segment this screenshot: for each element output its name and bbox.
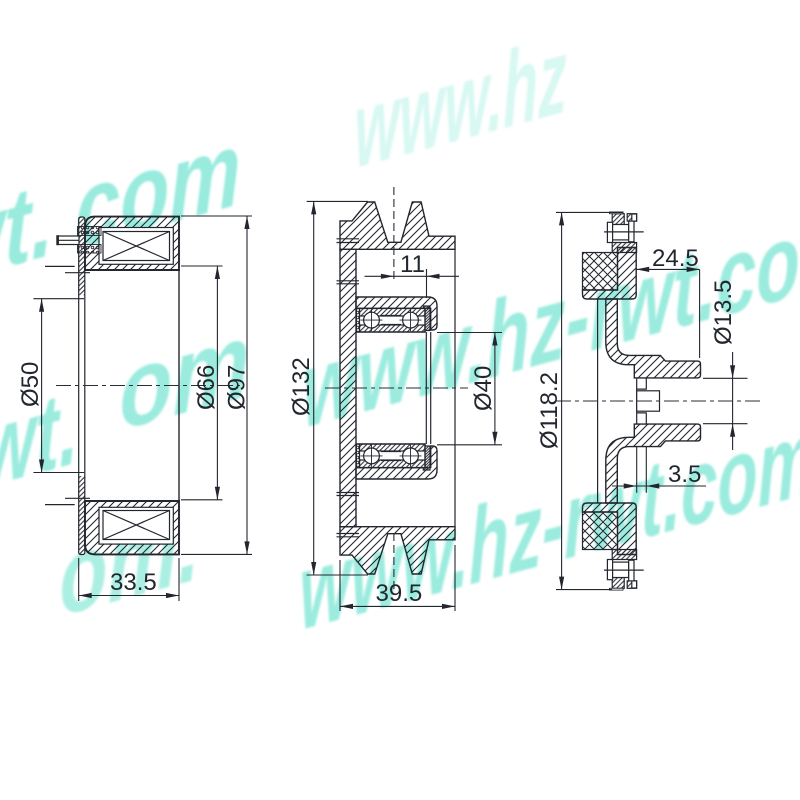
svg-text:Ø40: Ø40 xyxy=(470,366,497,411)
svg-text:11: 11 xyxy=(400,251,425,278)
svg-text:Ø50: Ø50 xyxy=(17,362,44,407)
svg-text:33.5: 33.5 xyxy=(110,569,157,596)
svg-text:Ø118.2: Ø118.2 xyxy=(536,372,563,449)
svg-text:Ø132: Ø132 xyxy=(288,357,315,416)
svg-text:Ø97: Ø97 xyxy=(224,365,251,410)
svg-text:24.5: 24.5 xyxy=(652,245,699,272)
svg-text:3.5: 3.5 xyxy=(668,461,701,488)
svg-text:39.5: 39.5 xyxy=(376,580,423,607)
svg-text:Ø66: Ø66 xyxy=(193,365,220,410)
svg-text:Ø13.5: Ø13.5 xyxy=(710,280,737,345)
